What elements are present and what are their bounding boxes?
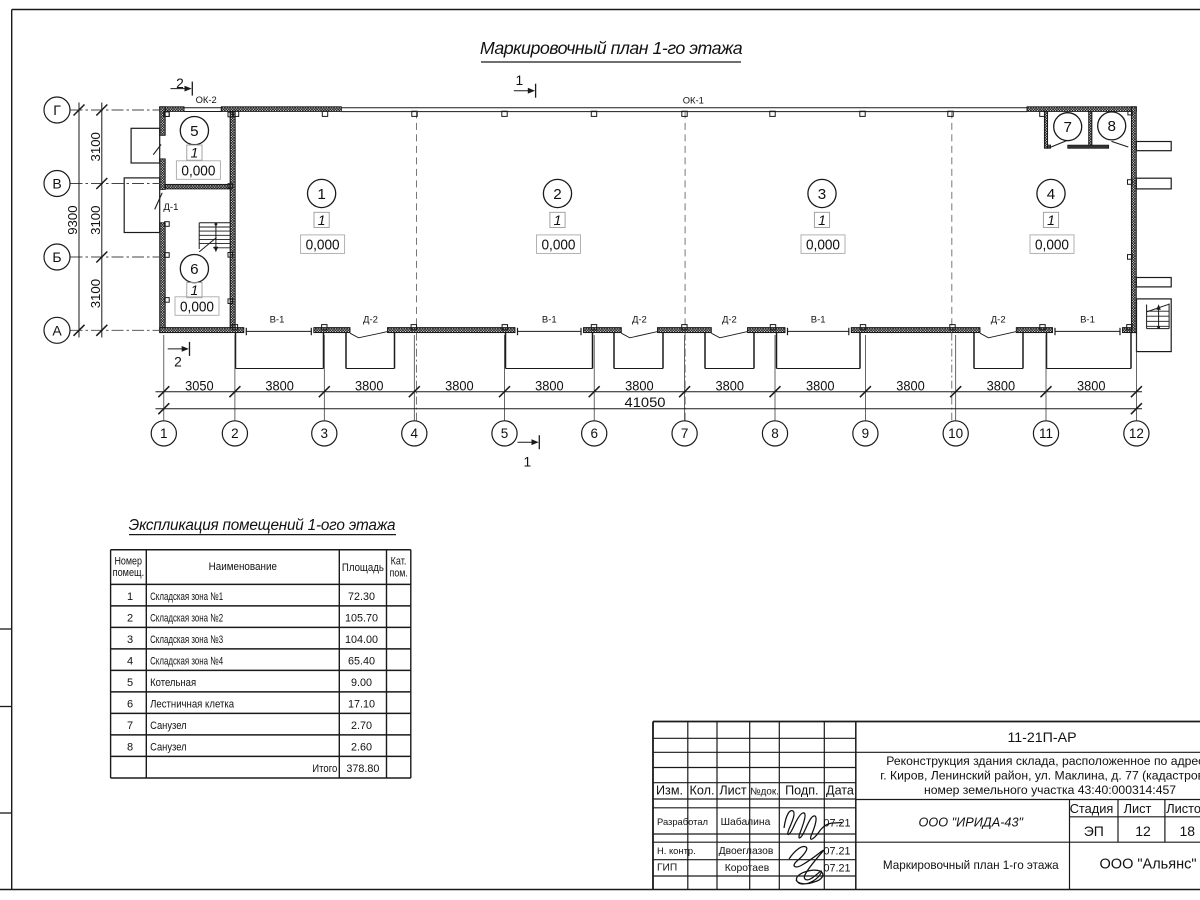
svg-text:Маркировочный план 1-го этажа: Маркировочный план 1-го этажа xyxy=(883,859,1059,872)
svg-text:3: 3 xyxy=(127,634,133,646)
svg-text:17.10: 17.10 xyxy=(348,698,375,710)
svg-text:3: 3 xyxy=(818,186,826,203)
svg-text:1: 1 xyxy=(318,212,326,228)
svg-text:В-1: В-1 xyxy=(542,314,557,325)
svg-text:Коротаев: Коротаев xyxy=(725,863,770,874)
svg-text:Складская зона №2: Складская зона №2 xyxy=(150,612,223,624)
svg-text:1: 1 xyxy=(191,145,199,161)
svg-text:Маркировочный план 1-го этажа: Маркировочный план 1-го этажа xyxy=(480,38,743,58)
svg-text:В-1: В-1 xyxy=(270,314,285,325)
svg-text:6: 6 xyxy=(127,698,133,710)
svg-text:Д-2: Д-2 xyxy=(632,314,647,325)
svg-text:пом.: пом. xyxy=(390,567,408,579)
svg-text:2.60: 2.60 xyxy=(351,741,372,753)
svg-text:Д-2: Д-2 xyxy=(722,314,737,325)
svg-text:6: 6 xyxy=(190,261,198,278)
svg-text:Площадь: Площадь xyxy=(342,562,384,574)
svg-text:Складская зона №4: Складская зона №4 xyxy=(150,655,223,667)
svg-text:105.70: 105.70 xyxy=(345,612,378,624)
svg-text:7: 7 xyxy=(681,426,689,441)
svg-text:Котельная: Котельная xyxy=(150,677,196,689)
svg-text:1: 1 xyxy=(554,212,562,228)
svg-text:Лист: Лист xyxy=(719,784,747,798)
svg-text:3100: 3100 xyxy=(88,132,103,161)
svg-text:Д-2: Д-2 xyxy=(991,314,1006,325)
svg-text:Д-2: Д-2 xyxy=(363,314,378,325)
svg-text:номер земельного участка 43:40: номер земельного участка 43:40:000314:45… xyxy=(924,783,1176,797)
svg-text:Наименование: Наименование xyxy=(209,561,277,573)
svg-text:3050: 3050 xyxy=(185,379,214,395)
svg-text:3800: 3800 xyxy=(716,379,745,395)
svg-text:г. Киров, Ленинский район, ул.: г. Киров, Ленинский район, ул. Маклина, … xyxy=(880,768,1200,782)
svg-text:10: 10 xyxy=(948,426,963,441)
svg-text:6: 6 xyxy=(590,426,598,441)
svg-text:Д-1: Д-1 xyxy=(163,202,178,213)
svg-text:41050: 41050 xyxy=(625,395,666,411)
svg-text:0,000: 0,000 xyxy=(306,237,340,254)
svg-text:3800: 3800 xyxy=(987,379,1016,395)
svg-text:Экспликация помещений 1-ого эт: Экспликация помещений 1-ого этажа xyxy=(129,517,396,534)
svg-text:3800: 3800 xyxy=(896,379,925,395)
svg-text:9300: 9300 xyxy=(65,205,80,234)
svg-text:Дата: Дата xyxy=(826,784,854,798)
svg-text:ЭП: ЭП xyxy=(1084,823,1104,839)
svg-text:378.80: 378.80 xyxy=(346,763,379,775)
svg-text:8: 8 xyxy=(771,426,779,441)
svg-text:2: 2 xyxy=(176,76,184,91)
svg-text:2: 2 xyxy=(553,186,561,203)
svg-text:1: 1 xyxy=(127,591,133,603)
svg-text:ОК-1: ОК-1 xyxy=(683,95,704,106)
svg-text:0,000: 0,000 xyxy=(806,237,840,254)
svg-text:0,000: 0,000 xyxy=(181,163,215,180)
svg-text:помещ.: помещ. xyxy=(113,567,145,579)
svg-text:1: 1 xyxy=(515,73,523,88)
svg-text:№док.: №док. xyxy=(750,786,779,797)
svg-text:Н. контр.: Н. контр. xyxy=(657,845,696,856)
svg-text:104.00: 104.00 xyxy=(345,634,378,646)
svg-text:Листов: Листов xyxy=(1166,801,1200,816)
svg-text:ООО "ИРИДА-43": ООО "ИРИДА-43" xyxy=(919,816,1024,830)
svg-text:2: 2 xyxy=(231,426,239,441)
svg-text:0,000: 0,000 xyxy=(542,237,576,254)
svg-text:8: 8 xyxy=(127,741,133,753)
svg-text:3800: 3800 xyxy=(625,379,654,395)
svg-text:Кат.: Кат. xyxy=(391,556,407,568)
svg-text:Санузел: Санузел xyxy=(150,720,187,732)
svg-text:3800: 3800 xyxy=(806,379,835,395)
svg-text:1: 1 xyxy=(523,455,531,470)
svg-text:8: 8 xyxy=(1107,118,1115,135)
svg-text:Реконструкция здания склада, р: Реконструкция здания склада, расположенн… xyxy=(886,754,1200,768)
svg-text:1: 1 xyxy=(1047,212,1055,228)
svg-text:0,000: 0,000 xyxy=(180,299,214,316)
svg-text:7: 7 xyxy=(127,720,133,732)
svg-text:1: 1 xyxy=(317,186,325,203)
svg-text:65.40: 65.40 xyxy=(348,655,375,667)
svg-text:ГИП: ГИП xyxy=(657,863,677,874)
svg-text:Г: Г xyxy=(53,102,61,118)
svg-text:2.70: 2.70 xyxy=(351,720,372,732)
svg-text:11: 11 xyxy=(1039,426,1053,441)
svg-text:2: 2 xyxy=(127,612,133,624)
svg-text:3100: 3100 xyxy=(88,206,103,235)
svg-text:Изм.: Изм. xyxy=(656,784,683,798)
svg-text:Шабалина: Шабалина xyxy=(721,816,771,828)
svg-text:12: 12 xyxy=(1135,823,1151,839)
svg-text:Складская зона №3: Складская зона №3 xyxy=(150,634,223,646)
svg-text:1: 1 xyxy=(160,426,168,441)
svg-text:4: 4 xyxy=(1047,186,1055,203)
svg-text:7: 7 xyxy=(1063,119,1071,136)
svg-text:ООО "Альянс": ООО "Альянс" xyxy=(1100,857,1197,873)
svg-text:Б: Б xyxy=(52,249,61,265)
svg-text:3800: 3800 xyxy=(535,379,564,395)
svg-text:9.00: 9.00 xyxy=(351,677,372,689)
svg-text:Номер: Номер xyxy=(114,556,142,568)
svg-text:3800: 3800 xyxy=(445,379,474,395)
svg-text:72.30: 72.30 xyxy=(348,591,375,603)
svg-text:1: 1 xyxy=(191,282,199,298)
svg-text:Разработал: Разработал xyxy=(657,816,708,827)
svg-text:Стадия: Стадия xyxy=(1070,801,1114,816)
svg-text:5: 5 xyxy=(501,426,509,441)
svg-text:07.21: 07.21 xyxy=(823,863,850,875)
svg-text:4: 4 xyxy=(411,426,419,441)
svg-text:Итого: Итого xyxy=(312,763,337,775)
svg-text:0,000: 0,000 xyxy=(1035,237,1069,254)
svg-text:1: 1 xyxy=(818,212,826,228)
svg-text:В-1: В-1 xyxy=(811,314,826,325)
svg-text:Двоеглазов: Двоеглазов xyxy=(719,846,774,857)
svg-text:2: 2 xyxy=(174,355,182,370)
svg-text:3800: 3800 xyxy=(265,379,294,395)
svg-text:5: 5 xyxy=(127,677,133,689)
svg-text:12: 12 xyxy=(1129,426,1144,441)
svg-text:Складская зона №1: Складская зона №1 xyxy=(150,591,223,603)
svg-text:Лестничная клетка: Лестничная клетка xyxy=(150,698,235,710)
svg-text:5: 5 xyxy=(190,123,198,140)
svg-text:3800: 3800 xyxy=(355,379,384,395)
svg-text:А: А xyxy=(52,322,62,338)
svg-text:11-21П-АР: 11-21П-АР xyxy=(1007,730,1076,746)
svg-text:3: 3 xyxy=(321,426,329,441)
svg-text:9: 9 xyxy=(862,426,870,441)
svg-text:07.21: 07.21 xyxy=(823,846,850,858)
svg-text:Санузел: Санузел xyxy=(150,741,187,753)
svg-text:В: В xyxy=(52,176,61,192)
svg-text:3800: 3800 xyxy=(1077,379,1106,395)
svg-text:Лист: Лист xyxy=(1124,801,1152,816)
svg-text:Подп.: Подп. xyxy=(785,784,818,798)
svg-text:Кол.: Кол. xyxy=(690,784,715,798)
svg-text:18: 18 xyxy=(1180,823,1196,839)
svg-text:В-1: В-1 xyxy=(1080,314,1095,325)
svg-text:4: 4 xyxy=(127,655,133,667)
svg-text:ОК-2: ОК-2 xyxy=(196,94,217,105)
svg-text:3100: 3100 xyxy=(88,279,103,308)
